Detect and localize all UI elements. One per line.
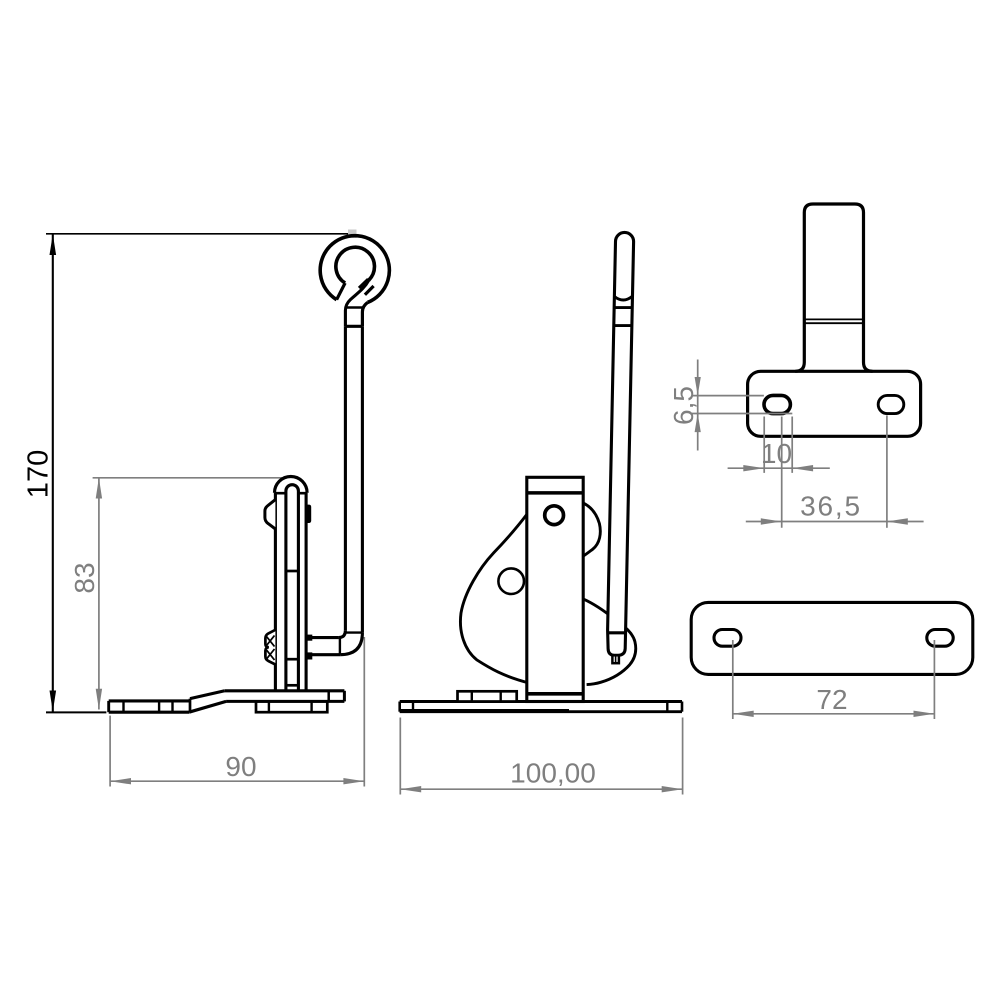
svg-text:170: 170 [23, 450, 55, 498]
svg-text:72: 72 [816, 684, 847, 715]
svg-text:83: 83 [69, 562, 100, 593]
svg-text:36,5: 36,5 [800, 490, 862, 521]
svg-text:90: 90 [225, 751, 256, 782]
svg-text:100,00: 100,00 [510, 758, 596, 789]
svg-text:6,5: 6,5 [668, 386, 699, 425]
svg-text:10: 10 [761, 438, 792, 469]
